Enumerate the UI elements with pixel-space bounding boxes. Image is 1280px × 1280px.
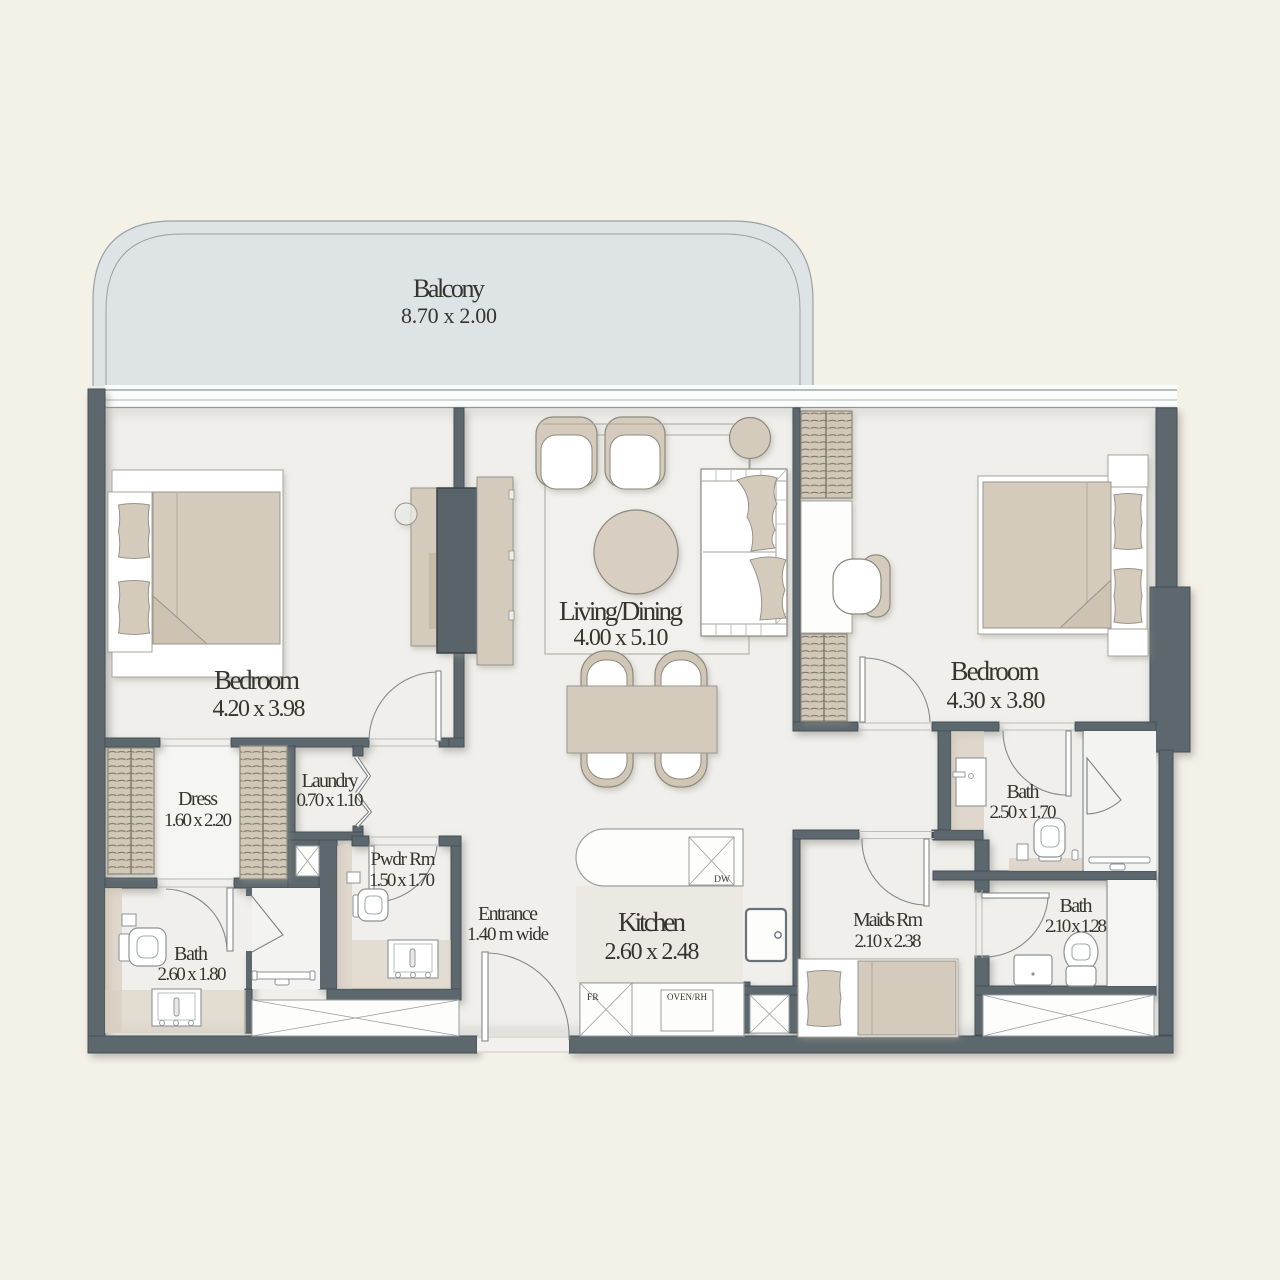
svg-text:Bath: Bath xyxy=(1060,895,1093,917)
svg-text:Laundry: Laundry xyxy=(302,770,359,792)
svg-text:FR: FR xyxy=(587,993,599,1003)
svg-text:2.60 x 2.48: 2.60 x 2.48 xyxy=(605,939,700,965)
svg-text:8.70 x 2.00: 8.70 x 2.00 xyxy=(401,303,497,328)
svg-text:Kitchen: Kitchen xyxy=(618,907,687,937)
svg-text:2.10 x 2.38: 2.10 x 2.38 xyxy=(855,931,922,952)
svg-text:DW: DW xyxy=(714,875,730,885)
svg-text:Living/Dining: Living/Dining xyxy=(559,596,683,626)
svg-text:Dress: Dress xyxy=(178,788,218,810)
svg-text:Entrance: Entrance xyxy=(478,903,538,925)
svg-text:4.00 x 5.10: 4.00 x 5.10 xyxy=(574,625,669,651)
svg-text:Bedroom: Bedroom xyxy=(214,665,300,695)
svg-text:2.50 x 1.70: 2.50 x 1.70 xyxy=(990,802,1057,823)
svg-text:2.10 x 1.28: 2.10 x 1.28 xyxy=(1045,916,1107,937)
svg-text:4.30 x 3.80: 4.30 x 3.80 xyxy=(947,688,1046,714)
svg-text:1.60 x 2.20: 1.60 x 2.20 xyxy=(164,810,232,831)
svg-text:4.20 x 3.98: 4.20 x 3.98 xyxy=(213,696,306,722)
svg-text:Bedroom: Bedroom xyxy=(951,656,1040,686)
svg-text:0.70 x 1.10: 0.70 x 1.10 xyxy=(297,790,364,811)
svg-text:Pwdr Rm: Pwdr Rm xyxy=(371,849,436,870)
svg-text:Bath: Bath xyxy=(1007,781,1040,803)
svg-text:1.50 x 1.70: 1.50 x 1.70 xyxy=(369,870,435,891)
svg-text:2.60 x 1.80: 2.60 x 1.80 xyxy=(158,964,227,985)
svg-text:Maids Rm: Maids Rm xyxy=(853,909,923,931)
svg-text:OVEN/RH: OVEN/RH xyxy=(667,992,707,1002)
svg-text:Balcony: Balcony xyxy=(413,274,485,303)
svg-text:Bath: Bath xyxy=(174,943,208,965)
svg-text:1.40 m wide: 1.40 m wide xyxy=(467,924,549,945)
